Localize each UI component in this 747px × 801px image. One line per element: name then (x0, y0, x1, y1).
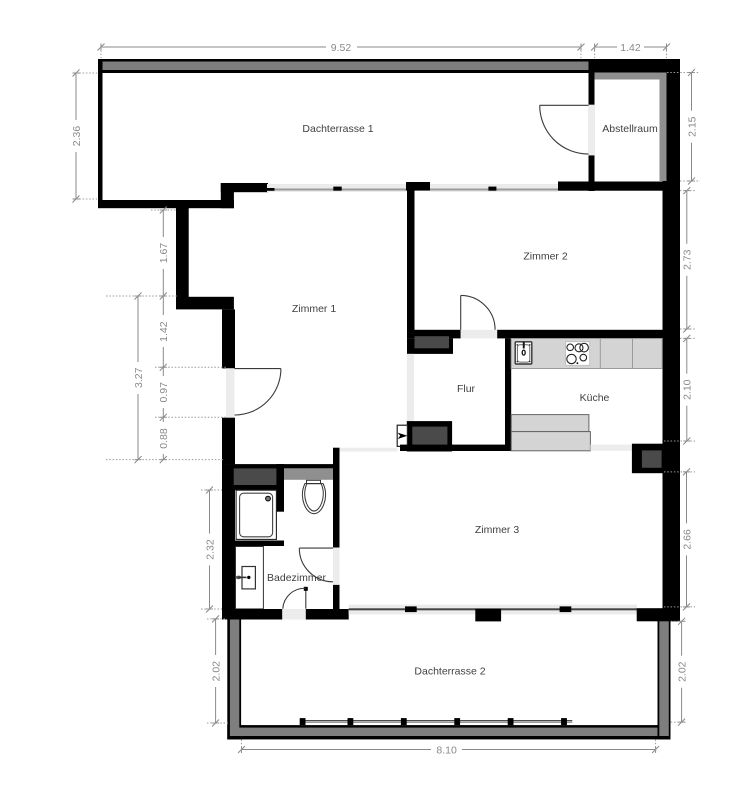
svg-text:Dachterrasse 1: Dachterrasse 1 (302, 123, 373, 135)
svg-text:Badezimmer: Badezimmer (267, 572, 326, 584)
svg-text:3.27: 3.27 (133, 367, 145, 388)
svg-text:Flur: Flur (457, 383, 476, 395)
svg-text:Küche: Küche (580, 392, 610, 404)
svg-text:0.88: 0.88 (158, 428, 170, 449)
svg-text:Zimmer 3: Zimmer 3 (475, 524, 519, 536)
svg-text:Dachterrasse 2: Dachterrasse 2 (414, 666, 485, 678)
svg-text:1.42: 1.42 (158, 321, 170, 342)
svg-text:1.67: 1.67 (158, 243, 170, 264)
svg-text:2.02: 2.02 (676, 661, 688, 682)
svg-text:2.66: 2.66 (681, 529, 693, 550)
svg-text:2.36: 2.36 (71, 126, 83, 147)
svg-text:Zimmer 2: Zimmer 2 (523, 251, 567, 263)
svg-text:0.97: 0.97 (158, 382, 170, 403)
svg-text:8.10: 8.10 (436, 745, 457, 757)
svg-text:2.02: 2.02 (210, 661, 222, 682)
svg-text:Abstellraum: Abstellraum (602, 123, 658, 135)
svg-text:2.32: 2.32 (204, 539, 216, 560)
svg-text:2.10: 2.10 (682, 379, 694, 400)
svg-text:9.52: 9.52 (331, 42, 352, 54)
svg-text:2.15: 2.15 (686, 116, 698, 137)
svg-text:2.73: 2.73 (682, 249, 694, 270)
svg-text:1.42: 1.42 (620, 42, 641, 54)
svg-text:Zimmer 1: Zimmer 1 (292, 303, 336, 315)
